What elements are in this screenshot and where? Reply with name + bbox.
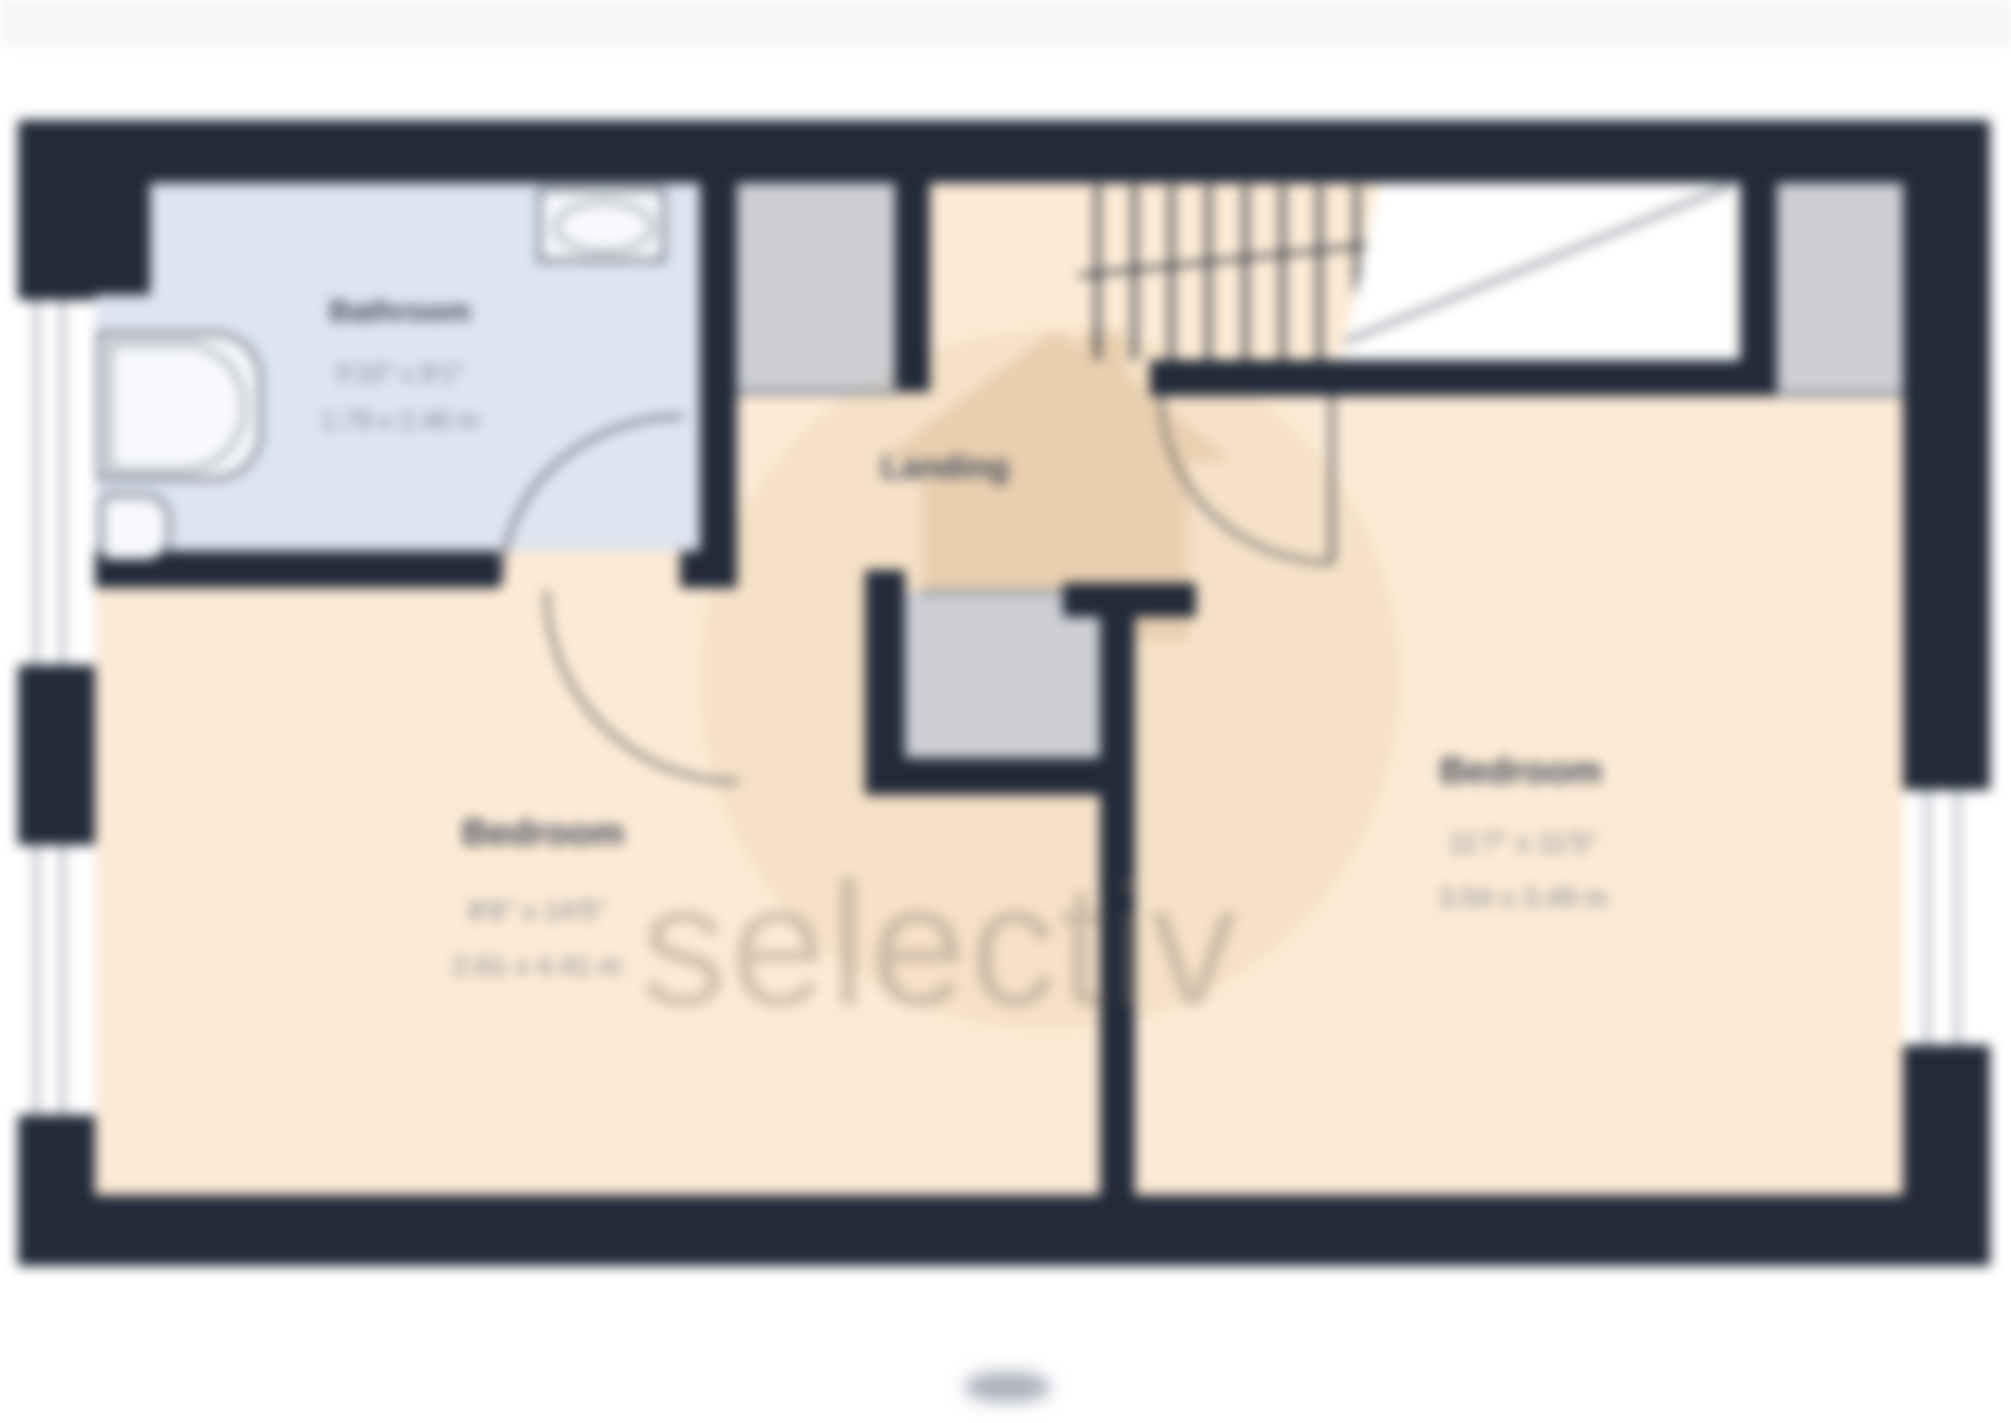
stair-tread: [1280, 185, 1285, 360]
wall-bottom: [18, 1195, 1990, 1266]
closet-top-area: [737, 183, 895, 390]
bedroom-right-dims-imperial: 11'7" x 11'5": [1353, 827, 1693, 859]
landing-label: Landing: [795, 448, 1095, 486]
wall-cupboard-bottom: [865, 758, 1135, 795]
wall-under-stairs: [1150, 360, 1777, 396]
floorplan-image: Bathroom 5'10" x 8'1" 1.79 x 2.46 m Land…: [0, 0, 2011, 1423]
wall-right-lower: [1903, 1045, 1990, 1266]
bathtub-inner: [109, 343, 245, 471]
window-glazing-line: [60, 300, 65, 665]
closet-top-right-door-line: [1777, 392, 1903, 397]
stair-tread: [1206, 185, 1211, 360]
window-bathroom: [18, 300, 95, 665]
stair-tread: [1243, 185, 1248, 360]
window-bedroom-right: [1903, 790, 1990, 1045]
sink-bowl: [555, 201, 653, 253]
window-glazing-line: [1955, 790, 1960, 1045]
closet-top-right-area: [1777, 183, 1903, 392]
page-top-band: [0, 0, 2011, 46]
closet-door-line: [737, 390, 895, 395]
bedroom-right-label: Bedroom: [1351, 750, 1691, 792]
wall-bathroom-bottom-right: [680, 551, 737, 588]
sink: [538, 188, 665, 262]
window-glazing-line: [34, 300, 39, 665]
bathroom-label: Bathroom: [230, 295, 570, 329]
window-glazing-line: [34, 845, 39, 1115]
stair-tread: [1132, 185, 1137, 360]
wall-left-upper: [18, 120, 95, 300]
wall-top: [18, 120, 1990, 183]
wall-left-middle: [18, 665, 95, 845]
wall-bathroom-right: [700, 183, 737, 588]
toilet: [100, 494, 170, 562]
bathroom-dims-imperial: 5'10" x 8'1": [230, 358, 570, 389]
stair-tread: [1169, 185, 1174, 360]
wall-landing-bedroom-right: [1063, 583, 1196, 617]
wall-stairs-right: [1740, 120, 1777, 396]
door-hinge-tick: [1113, 617, 1129, 645]
window-bedroom-left: [18, 845, 95, 1115]
window-glazing-line: [1925, 790, 1930, 1045]
stair-tread: [1317, 185, 1322, 360]
window-glazing-line: [60, 845, 65, 1115]
footer-blurred-mark: [965, 1372, 1050, 1402]
bedroom-right-dims-metric: 3.54 x 3.49 m: [1353, 882, 1693, 914]
watermark-text: selectiv: [640, 845, 1240, 1046]
wall-left-lower: [18, 1115, 95, 1266]
wall-right-upper: [1903, 120, 1990, 790]
stair-void: [1320, 183, 1740, 360]
floorplan-page: Bathroom 5'10" x 8'1" 1.79 x 2.46 m Land…: [0, 0, 2011, 1423]
wall-closet-top-right: [895, 183, 930, 392]
bathroom-dims-metric: 1.79 x 2.46 m: [230, 405, 570, 436]
bedroom-right-door-leaf: [1330, 396, 1334, 561]
cupboard-door-line: [920, 590, 1063, 594]
